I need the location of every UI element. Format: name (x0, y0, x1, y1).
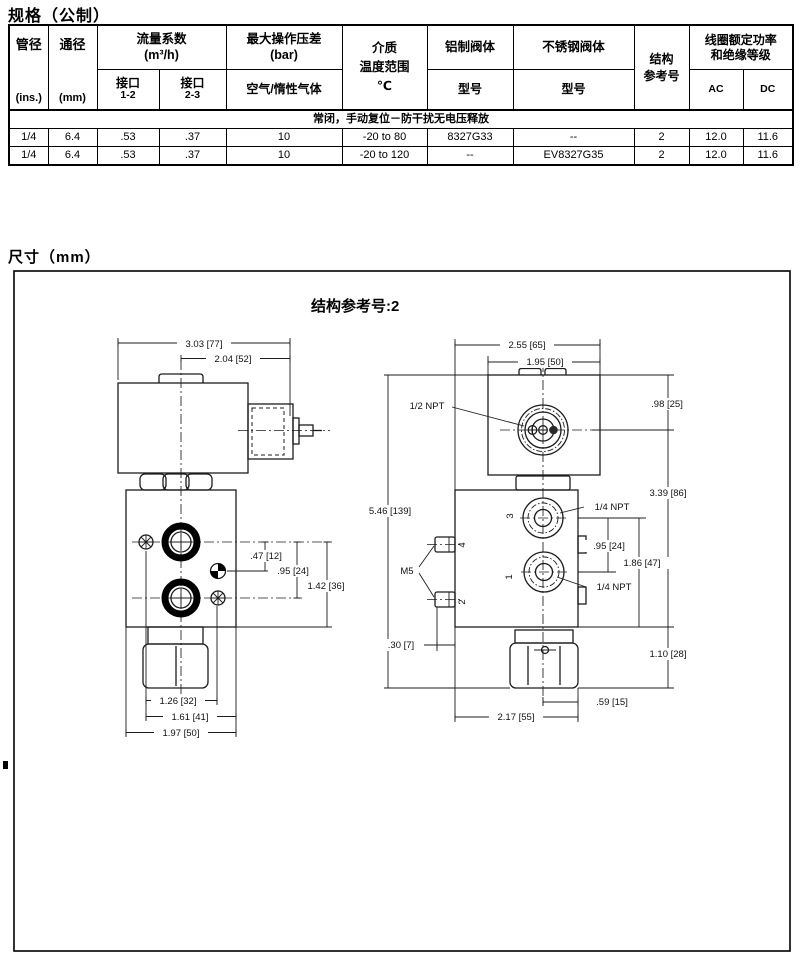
drawing-frame (14, 271, 790, 951)
dim-front-screw-to-edge: 1.61 [41] (172, 712, 209, 723)
spec-section-title: 规格（公制） (8, 2, 110, 26)
conduit-hub (518, 405, 568, 455)
dim-front-coil-width: 2.04 [52] (215, 354, 252, 365)
dim-side-body-depth: 2.17 [55] (498, 712, 535, 723)
col-dc: DC (743, 70, 793, 109)
col-construction-ref: 结构 参考号 (634, 25, 689, 110)
dim-side-mount-depth: .30 [7] (388, 640, 414, 651)
table-group-row: 常闭，手动复位－防干扰无电压释放 (9, 110, 793, 129)
dim-side-coil-width: 1.95 [50] (527, 357, 564, 368)
col-air-inert-gas: 空气/惰性气体 (227, 70, 342, 109)
col-flow-port-1-2: 接口 1-2 (98, 70, 159, 109)
dim-side-coil-top-to-conduit: .98 [25] (651, 399, 683, 410)
label-port-2: 2 (457, 599, 468, 604)
dimensions-section-title: 尺寸（mm） (8, 246, 101, 267)
coil-outline-side (488, 375, 600, 475)
datasheet-page: { "page": { "spec_title": "规格（公制）", "dim… (0, 0, 800, 964)
dim-front-port-to-bottom: 1.42 [36] (308, 581, 345, 592)
dim-front-overall-width: 3.03 [77] (186, 339, 223, 350)
label-port1-npt: 1/4 NPT (597, 582, 632, 593)
dim-front-port-offset: .47 [12] (250, 551, 282, 562)
dim-side-port-spacing: .95 [24] (593, 541, 625, 552)
dim-front-screw-spacing: 1.26 [32] (160, 696, 197, 707)
connector-plate (293, 418, 299, 444)
col-max-pressure: 最大操作压差 (bar) 空气/惰性气体 (226, 25, 342, 110)
side-view (384, 339, 674, 722)
manual-reset-nut-side (510, 643, 578, 688)
dim-side-center-to-edge: .59 [15] (596, 697, 628, 708)
dimension-labels: 3.03 [77] 2.04 [52] .47 [12] .95 [24] 1.… (151, 338, 695, 739)
dim-side-overall-height: 5.46 [139] (369, 506, 411, 517)
col-stainless-body: 不锈钢阀体 型号 (513, 25, 634, 110)
drawing-title: 结构参考号:2 (311, 297, 399, 315)
dimension-drawing: 结构参考号:2 (13, 270, 791, 952)
dim-side-nut-height: 1.10 [28] (650, 649, 687, 660)
datum-target-symbol (211, 564, 226, 579)
mounting-screw-2 (211, 591, 225, 605)
front-view (118, 338, 332, 737)
label-conduit-npt: 1/2 NPT (410, 401, 445, 412)
label-port3-npt: 1/4 NPT (595, 502, 630, 513)
col-flow-coefficient: 流量系数 (m³/h) 接口 1-2 接口 2-3 (97, 25, 226, 110)
dim-side-overall-width: 2.55 [65] (509, 340, 546, 351)
col-ac: AC (690, 70, 743, 109)
label-m5-thread: M5 (400, 566, 413, 577)
label-port-4: 4 (457, 542, 468, 547)
col-media-temp: 介质 温度范围 ℃ (342, 25, 427, 110)
scan-artifact-mark (3, 761, 8, 769)
table-row: 1/46.4 .53.37 10-20 to 120 --EV8327G35 2… (9, 147, 793, 166)
label-port-3: 3 (505, 513, 516, 518)
dim-side-port-to-bottom: 1.86 [47] (624, 558, 661, 569)
col-orifice: 通径 (mm) (48, 25, 97, 110)
dim-front-body-width: 1.97 [50] (163, 728, 200, 739)
col-pipe-size: 管径 (ins.) (9, 25, 48, 110)
connector-hidden-lines (252, 408, 284, 455)
col-coil-rating: 线圈额定功率 和绝缘等级 AC DC (689, 25, 793, 110)
table-row: 1/46.4 .53.37 10-20 to 80 8327G33-- 212.… (9, 129, 793, 147)
spec-table: 管径 (ins.) 通径 (mm) 流量系数 (m³/h) 接口 1-2 (8, 24, 794, 166)
mounting-screw-1 (139, 535, 153, 549)
connector-housing (248, 404, 293, 459)
coil-outline (118, 383, 248, 473)
col-flow-port-2-3: 接口 2-3 (159, 70, 226, 109)
dim-side-conduit-to-bottom: 3.39 [86] (650, 488, 687, 499)
dim-front-port-spacing: .95 [24] (277, 566, 309, 577)
col-aluminum-body: 铝制阀体 型号 (427, 25, 513, 110)
label-port-1: 1 (504, 574, 515, 579)
